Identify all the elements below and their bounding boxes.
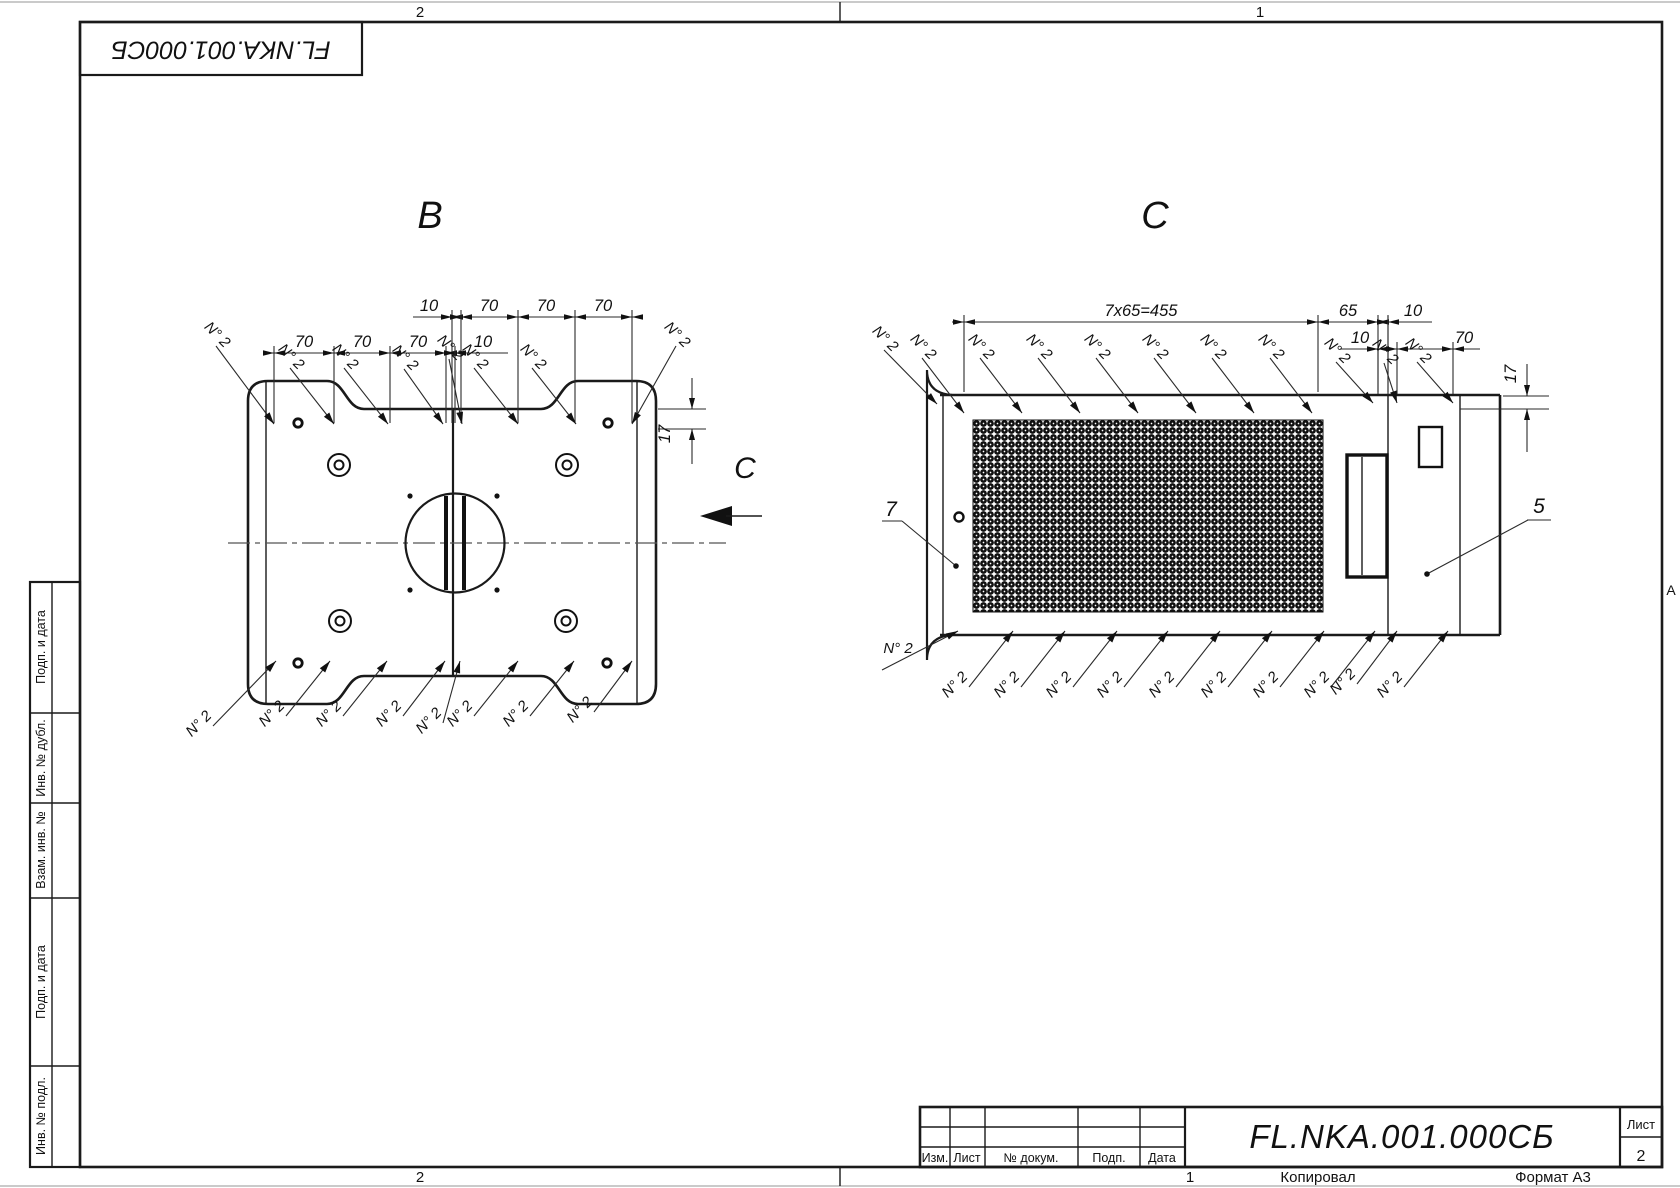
- arrowhead-icon: [435, 661, 445, 673]
- arrowhead-icon: [621, 314, 632, 320]
- weld-label: N° 2: [412, 704, 445, 737]
- dimension-label: 70: [480, 297, 499, 315]
- arrowhead-icon: [320, 661, 330, 673]
- view-c-title: C: [1141, 195, 1169, 237]
- weld-label: N° 2: [499, 697, 532, 730]
- arrowhead-icon: [1107, 631, 1117, 643]
- view-c-dims-row1: 7x65=4556510: [952, 302, 1432, 392]
- arrowhead-icon: [1302, 401, 1312, 413]
- arrowhead-icon: [1453, 346, 1464, 352]
- weld-label: N° 2: [661, 318, 694, 351]
- arrowhead-icon: [508, 661, 518, 673]
- title-block: Изм. Лист № докум. Подп. Дата FL.NKA.001…: [920, 1107, 1662, 1167]
- view-c: C 7 5: [869, 195, 1551, 701]
- row-marker: A: [1666, 582, 1676, 598]
- side-label-4: Инв. № подл.: [34, 1077, 48, 1155]
- arrowhead-icon: [1070, 401, 1080, 413]
- view-b: B: [182, 195, 762, 740]
- format-note: Формат А3: [1515, 1169, 1591, 1186]
- stamp-sheet-number: 2: [1637, 1148, 1646, 1165]
- weld-label: N° 2: [1042, 668, 1075, 701]
- weld-label: N° 2: [1249, 668, 1282, 701]
- view-b-dim-17: 17: [656, 378, 706, 464]
- arrowhead-icon: [1003, 631, 1013, 643]
- view-b-title: B: [417, 195, 442, 237]
- view-b-dim-17-text: 17: [656, 424, 674, 443]
- corner-designation-text: FL.NKA.001.000СБ: [111, 35, 330, 63]
- arrowhead-icon: [1262, 631, 1272, 643]
- zone-label-top-2: 2: [416, 4, 424, 21]
- weld-label: N° 2: [990, 668, 1023, 701]
- stamp-col-list: Лист: [953, 1151, 980, 1165]
- side-label-2: Взам. инв. №: [34, 811, 48, 888]
- arrowhead-icon: [964, 319, 975, 325]
- dimension-label: 10: [1351, 329, 1370, 347]
- weld-label: N° 2: [1081, 330, 1114, 363]
- view-c-welds-bottom: N° 2N° 2N° 2N° 2N° 2N° 2N° 2N° 2N° 2N° 2…: [882, 631, 1448, 701]
- weld-label: N° 2: [517, 340, 550, 373]
- dimension-label: 65: [1339, 302, 1358, 320]
- dimension-label: 70: [1455, 329, 1474, 347]
- item-5-label: 5: [1533, 495, 1545, 518]
- weld-label: N° 2: [1326, 665, 1359, 698]
- stamp-designation: FL.NKA.001.000СБ: [1249, 1118, 1554, 1155]
- item-leader-5: 5: [1424, 495, 1551, 577]
- arrowhead-icon: [1318, 319, 1329, 325]
- paper-edges: [0, 2, 1680, 1186]
- arrowhead-icon: [1244, 401, 1254, 413]
- arrowhead-icon: [1307, 319, 1318, 325]
- arrowhead-icon: [508, 413, 518, 425]
- dimension-label: 70: [295, 333, 314, 351]
- weld-label: N° 2: [312, 697, 345, 730]
- view-direction-label: C: [734, 452, 756, 485]
- arrowhead-icon: [1128, 401, 1138, 413]
- weld-label: N° 2: [1255, 330, 1288, 363]
- arrowhead-icon: [263, 350, 274, 356]
- dimension-label: 10: [1404, 302, 1423, 320]
- view-c-mesh-panel: [973, 420, 1323, 612]
- weld-leader: [632, 346, 676, 424]
- sheet-frame: 2 1 2 1 Копировал Формат А3 A: [80, 2, 1676, 1186]
- arrowhead-icon: [1367, 319, 1378, 325]
- weld-label: N° 2: [1197, 668, 1230, 701]
- zone-label-bottom-2: 2: [416, 1169, 424, 1186]
- arrowhead-icon: [1186, 401, 1196, 413]
- weld-label: N° 2: [1373, 668, 1406, 701]
- stamp-col-izm: Изм.: [922, 1151, 949, 1165]
- weld-label: N° 2: [1321, 334, 1354, 367]
- item-7-label: 7: [885, 498, 898, 521]
- arrowhead-icon: [1210, 631, 1220, 643]
- arrowhead-icon: [564, 314, 575, 320]
- arrowhead-icon: [1158, 631, 1168, 643]
- side-label-3: Подп. и дата: [34, 945, 48, 1019]
- weld-label: N° 2: [1145, 668, 1178, 701]
- arrowhead-icon: [954, 401, 964, 413]
- weld-label: N° 2: [965, 330, 998, 363]
- view-c-small-hole: [955, 513, 964, 522]
- arrowhead-icon: [1314, 631, 1324, 643]
- dimension-label: 70: [594, 297, 613, 315]
- weld-label: N° 2: [869, 322, 902, 355]
- stamp-col-docnum: № докум.: [1004, 1151, 1059, 1165]
- weld-label: N° 2: [1402, 334, 1435, 367]
- arrowhead-icon: [1388, 319, 1399, 325]
- weld-label: N° 2: [182, 707, 215, 740]
- view-c-dim-17-text: 17: [1502, 364, 1520, 383]
- view-b-welds-bottom: N° 2N° 2N° 2N° 2N° 2N° 2N° 2N° 2: [182, 661, 632, 740]
- arrowhead-icon: [632, 314, 643, 320]
- arrowhead-icon: [1055, 631, 1065, 643]
- stamp-col-data: Дата: [1148, 1151, 1176, 1165]
- stamp-col-podp: Подп.: [1092, 1151, 1125, 1165]
- copied-note: Копировал: [1280, 1169, 1355, 1186]
- arrowhead-icon: [378, 413, 388, 425]
- side-label-0: Подп. и дата: [34, 610, 48, 684]
- weld-label: N° 2: [1139, 330, 1172, 363]
- arrowhead-icon: [1365, 631, 1375, 643]
- side-column: Подп. и дата Инв. № дубл. Взам. инв. № П…: [30, 582, 80, 1167]
- arrowhead-icon: [1012, 401, 1022, 413]
- arrowhead-icon: [518, 314, 529, 320]
- arrowhead-icon: [1438, 631, 1448, 643]
- weld-label: N° 2: [1023, 330, 1056, 363]
- dimension-label: 70: [537, 297, 556, 315]
- weld-label: N° 2: [1197, 330, 1230, 363]
- weld-label: N° 2: [1093, 668, 1126, 701]
- corner-designation-box: FL.NKA.001.000СБ: [80, 22, 362, 75]
- weld-label: N° 2: [372, 697, 405, 730]
- arrowhead-icon: [454, 661, 461, 674]
- arrowhead-icon: [1442, 346, 1453, 352]
- arrowhead-icon: [456, 412, 463, 424]
- arrowhead-icon: [507, 314, 518, 320]
- arrowhead-icon: [953, 319, 964, 325]
- weld-label: N° 2: [201, 318, 234, 351]
- arrowhead-icon: [1390, 391, 1397, 404]
- arrowhead-icon: [433, 412, 443, 424]
- side-label-1: Инв. № дубл.: [34, 719, 48, 796]
- drawing-canvas: 2 1 2 1 Копировал Формат А3 A FL.NKA.001…: [0, 0, 1680, 1188]
- arrowhead-icon: [324, 413, 334, 425]
- zone-label-bottom-1: 1: [1186, 1169, 1194, 1186]
- arrowhead-icon: [450, 314, 461, 320]
- weld-label: N° 2: [938, 668, 971, 701]
- weld-label: N° 2: [563, 693, 596, 726]
- item-leader-7: 7: [882, 498, 959, 569]
- view-c-dim-17: 17: [1460, 364, 1549, 452]
- view-c-left-flange: [927, 370, 952, 660]
- dimension-label: 70: [353, 333, 372, 351]
- arrowhead-icon: [575, 314, 586, 320]
- weld-label: N° 2: [883, 640, 913, 657]
- frame-border: [80, 22, 1662, 1167]
- zone-label-top-1: 1: [1256, 4, 1264, 21]
- arrowhead-icon: [377, 661, 387, 673]
- view-c-latch: [1347, 455, 1387, 577]
- weld-label: N° 2: [907, 330, 940, 363]
- arrowhead-icon: [622, 661, 632, 673]
- view-direction-c: C: [700, 452, 762, 526]
- drawing-sheet: 2 1 2 1 Копировал Формат А3 A FL.NKA.001…: [0, 0, 1680, 1188]
- dimension-label: 70: [409, 333, 428, 351]
- arrowhead-icon: [564, 661, 574, 673]
- view-c-small-cutout: [1419, 427, 1442, 467]
- stamp-sheet-label: Лист: [1627, 1117, 1655, 1132]
- dimension-label: 7x65=455: [1105, 302, 1179, 320]
- dimension-label: 10: [420, 297, 439, 315]
